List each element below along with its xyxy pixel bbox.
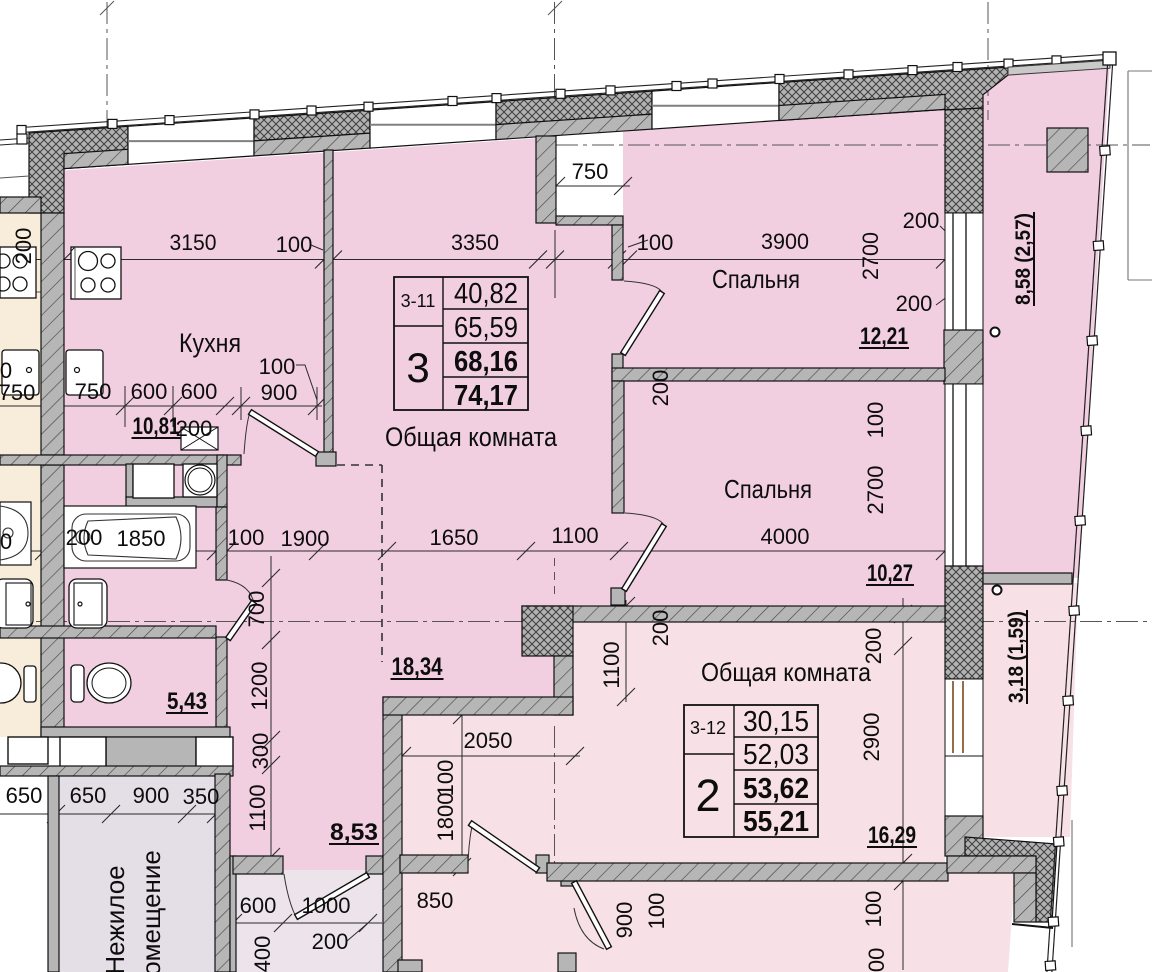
svg-text:700: 700	[244, 591, 269, 628]
svg-text:Кухня: Кухня	[179, 328, 241, 358]
svg-text:1650: 1650	[430, 525, 479, 550]
svg-text:10,81: 10,81	[133, 413, 180, 440]
svg-text:2700: 2700	[858, 232, 883, 280]
svg-text:200: 200	[648, 370, 673, 407]
svg-text:600: 600	[181, 379, 218, 404]
svg-text:750: 750	[572, 159, 609, 184]
svg-text:53,62: 53,62	[743, 773, 809, 805]
svg-text:850: 850	[417, 888, 454, 913]
svg-text:Спальня: Спальня	[724, 474, 812, 504]
svg-text:1000: 1000	[302, 893, 351, 918]
svg-text:200: 200	[312, 929, 349, 954]
svg-text:65,59: 65,59	[454, 312, 518, 344]
svg-text:18,34: 18,34	[392, 653, 443, 681]
svg-text:100: 100	[433, 760, 458, 797]
svg-text:68,16: 68,16	[454, 346, 518, 378]
svg-text:200: 200	[176, 416, 213, 441]
svg-text:2: 2	[695, 770, 720, 821]
svg-text:200: 200	[648, 610, 673, 647]
svg-text:3,18 (1,59): 3,18 (1,59)	[1005, 611, 1028, 703]
svg-text:1100: 1100	[599, 641, 624, 688]
svg-text:750: 750	[75, 379, 112, 404]
svg-text:5,43: 5,43	[167, 688, 207, 715]
svg-text:100: 100	[276, 232, 313, 257]
svg-text:100: 100	[863, 402, 888, 439]
svg-text:0: 0	[0, 529, 12, 554]
svg-text:2700: 2700	[863, 466, 888, 515]
svg-text:900: 900	[864, 948, 889, 972]
svg-text:100: 100	[644, 893, 669, 930]
svg-text:650: 650	[6, 783, 43, 808]
svg-text:74,17: 74,17	[454, 380, 518, 412]
svg-text:100: 100	[228, 525, 265, 550]
svg-text:100: 100	[861, 891, 886, 928]
svg-text:16,29: 16,29	[868, 822, 916, 849]
svg-text:3: 3	[406, 344, 429, 391]
svg-text:200: 200	[11, 228, 36, 265]
svg-text:3-11: 3-11	[401, 291, 436, 311]
svg-text:2900: 2900	[859, 713, 884, 762]
svg-text:750: 750	[0, 380, 35, 405]
svg-text:1100: 1100	[551, 523, 598, 548]
svg-text:350: 350	[183, 784, 220, 809]
svg-text:900: 900	[261, 380, 298, 405]
svg-text:55,21: 55,21	[743, 806, 809, 838]
svg-text:200: 200	[66, 525, 103, 550]
svg-text:помещение: помещение	[136, 850, 166, 972]
svg-text:Общая комната: Общая комната	[385, 422, 558, 452]
svg-text:200: 200	[896, 291, 933, 316]
svg-text:0: 0	[0, 358, 12, 383]
svg-text:1200: 1200	[247, 662, 272, 711]
svg-text:1800: 1800	[433, 793, 458, 842]
svg-text:200: 200	[903, 208, 940, 233]
svg-text:Нежилое: Нежилое	[100, 865, 130, 972]
svg-text:100: 100	[259, 354, 296, 379]
svg-text:200: 200	[861, 628, 886, 665]
svg-text:8,58 (2,57): 8,58 (2,57)	[1012, 213, 1035, 305]
svg-text:900: 900	[612, 902, 637, 939]
svg-text:100: 100	[637, 230, 674, 255]
svg-text:8,53: 8,53	[330, 819, 378, 846]
svg-text:1900: 1900	[281, 526, 330, 551]
svg-text:1100: 1100	[245, 784, 270, 831]
svg-text:3-12: 3-12	[690, 718, 726, 738]
svg-text:650: 650	[70, 783, 107, 808]
svg-text:12,21: 12,21	[860, 323, 908, 350]
svg-text:Общая комната: Общая комната	[701, 657, 871, 687]
svg-text:300: 300	[248, 733, 273, 770]
svg-text:4000: 4000	[761, 524, 810, 549]
svg-text:30,15: 30,15	[743, 706, 809, 738]
svg-text:600: 600	[240, 893, 277, 918]
svg-text:3150: 3150	[170, 230, 217, 255]
svg-text:40,82: 40,82	[454, 278, 518, 310]
svg-text:10,27: 10,27	[867, 560, 913, 587]
svg-text:900: 900	[133, 783, 170, 808]
svg-text:400: 400	[250, 936, 275, 972]
svg-text:1850: 1850	[117, 526, 166, 551]
svg-text:600: 600	[131, 379, 168, 404]
svg-text:3350: 3350	[451, 230, 499, 255]
svg-text:52,03: 52,03	[743, 739, 809, 771]
svg-text:3900: 3900	[761, 229, 809, 254]
svg-text:Спальня: Спальня	[712, 264, 800, 294]
svg-text:2050: 2050	[464, 728, 513, 753]
